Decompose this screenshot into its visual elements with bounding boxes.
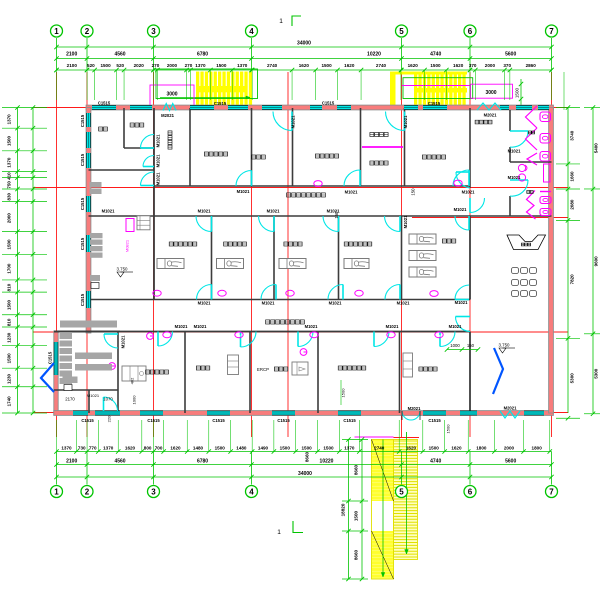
svg-text:2020: 2020 (134, 63, 145, 68)
svg-text:270: 270 (152, 63, 160, 68)
svg-text:1480: 1480 (236, 445, 247, 450)
svg-text:M1021: M1021 (156, 134, 161, 147)
svg-text:34000: 34000 (298, 471, 312, 477)
svg-text:1620: 1620 (451, 445, 462, 450)
svg-text:7820: 7820 (570, 274, 575, 285)
svg-text:1660: 1660 (570, 171, 575, 182)
svg-text:C1515: C1515 (343, 418, 356, 423)
svg-text:700: 700 (155, 445, 163, 450)
svg-text:1500: 1500 (515, 87, 520, 98)
svg-text:C1515: C1515 (214, 101, 227, 106)
svg-text:1500: 1500 (430, 63, 441, 68)
svg-text:C1515: C1515 (80, 197, 85, 210)
svg-text:2740: 2740 (376, 63, 387, 68)
svg-text:4560: 4560 (114, 458, 125, 464)
svg-text:2100: 2100 (67, 63, 78, 68)
svg-text:M1021: M1021 (121, 335, 126, 348)
svg-text:1370: 1370 (7, 114, 12, 125)
svg-text:220: 220 (107, 415, 112, 422)
svg-text:370: 370 (469, 63, 477, 68)
svg-text:3740: 3740 (570, 130, 575, 141)
svg-text:5600: 5600 (505, 52, 516, 58)
svg-text:M1021: M1021 (291, 115, 296, 128)
svg-text:1230: 1230 (7, 373, 12, 384)
svg-text:770: 770 (89, 445, 97, 450)
svg-text:1500: 1500 (215, 445, 226, 450)
svg-text:C1515: C1515 (80, 237, 85, 250)
svg-text:M1021: M1021 (267, 209, 280, 214)
svg-text:1500: 1500 (7, 135, 12, 146)
svg-text:M1021: M1021 (327, 209, 340, 214)
svg-text:3.750: 3.750 (117, 267, 129, 272)
svg-text:1620: 1620 (125, 445, 136, 450)
svg-text:1370: 1370 (61, 445, 72, 450)
svg-text:1500: 1500 (7, 353, 12, 364)
svg-text:C1515: C1515 (212, 418, 225, 423)
svg-text:3.750: 3.750 (499, 343, 511, 348)
svg-text:1230: 1230 (7, 332, 12, 343)
svg-text:M1021: M1021 (305, 324, 318, 329)
svg-text:1000: 1000 (450, 343, 460, 348)
svg-text:M2021: M2021 (408, 406, 421, 411)
svg-text:1620: 1620 (408, 63, 419, 68)
svg-text:C1515: C1515 (80, 153, 85, 166)
svg-text:M1021: M1021 (262, 301, 275, 306)
svg-text:5: 5 (399, 27, 404, 36)
svg-text:1370: 1370 (195, 63, 206, 68)
svg-text:M1021: M1021 (329, 301, 342, 306)
svg-text:2170: 2170 (65, 397, 75, 402)
svg-text:1500: 1500 (321, 63, 332, 68)
svg-text:C1515: C1515 (428, 101, 441, 106)
svg-text:5: 5 (399, 487, 404, 496)
svg-text:4740: 4740 (430, 52, 441, 58)
svg-text:6: 6 (468, 27, 473, 36)
svg-text:2740: 2740 (374, 445, 385, 450)
svg-text:1800: 1800 (476, 445, 487, 450)
svg-text:M1021: M1021 (403, 115, 408, 128)
svg-text:1480: 1480 (193, 445, 204, 450)
svg-text:7: 7 (549, 27, 554, 36)
svg-text:730: 730 (78, 445, 86, 450)
svg-text:M1021: M1021 (462, 189, 475, 194)
svg-text:M1021: M1021 (397, 301, 410, 306)
svg-text:M0821: M0821 (125, 239, 130, 252)
svg-text:M1021: M1021 (156, 154, 161, 167)
svg-text:810: 810 (7, 318, 12, 326)
svg-text:C1515: C1515 (277, 418, 290, 423)
svg-text:1500: 1500 (280, 445, 291, 450)
svg-text:3: 3 (151, 27, 156, 36)
svg-text:34000: 34000 (297, 41, 311, 47)
svg-text:2100: 2100 (66, 52, 77, 58)
svg-text:M1021: M1021 (194, 324, 207, 329)
svg-text:M1021: M1021 (454, 207, 467, 212)
svg-text:3: 3 (151, 487, 156, 496)
svg-text:M1021: M1021 (455, 300, 468, 305)
svg-text:M1021: M1021 (102, 209, 115, 214)
svg-text:1490: 1490 (258, 445, 269, 450)
svg-text:1070: 1070 (103, 397, 113, 402)
svg-text:2740: 2740 (267, 63, 278, 68)
svg-text:1620: 1620 (170, 445, 181, 450)
svg-text:1: 1 (54, 27, 59, 36)
svg-text:370: 370 (503, 63, 511, 68)
svg-text:ERCP: ERCP (257, 367, 269, 372)
svg-text:1370: 1370 (7, 157, 12, 168)
svg-text:3000: 3000 (485, 90, 496, 96)
svg-text:3000: 3000 (166, 92, 177, 98)
svg-text:2: 2 (85, 487, 90, 496)
svg-text:2000: 2000 (485, 63, 496, 68)
svg-text:520: 520 (116, 63, 124, 68)
svg-text:2080: 2080 (570, 199, 575, 210)
svg-text:M1021: M1021 (386, 324, 399, 329)
svg-text:1500: 1500 (7, 239, 12, 250)
svg-text:5600: 5600 (505, 458, 516, 464)
svg-text:800: 800 (144, 445, 152, 450)
svg-text:1370: 1370 (344, 445, 355, 450)
svg-text:7: 7 (549, 487, 554, 496)
svg-text:2860: 2860 (526, 63, 537, 68)
svg-text:1: 1 (279, 18, 283, 25)
svg-text:M1021: M1021 (237, 189, 250, 194)
svg-text:6780: 6780 (197, 52, 208, 58)
svg-text:5400: 5400 (594, 143, 599, 154)
svg-text:M1021: M1021 (403, 215, 408, 228)
svg-text:1370: 1370 (103, 445, 114, 450)
svg-text:4740: 4740 (430, 458, 441, 464)
svg-text:520: 520 (87, 63, 95, 68)
svg-text:6780: 6780 (197, 458, 208, 464)
svg-text:150: 150 (411, 188, 416, 196)
svg-text:C1515: C1515 (80, 114, 85, 127)
svg-text:810: 810 (7, 283, 12, 291)
svg-text:1500: 1500 (446, 424, 451, 434)
svg-text:5300: 5300 (570, 373, 575, 384)
svg-text:10220: 10220 (367, 52, 381, 58)
svg-text:M1021: M1021 (508, 149, 521, 154)
svg-text:4: 4 (249, 27, 254, 36)
svg-text:M2021: M2021 (484, 113, 497, 118)
svg-text:1500: 1500 (354, 510, 359, 521)
svg-text:M1021: M1021 (87, 393, 100, 398)
svg-text:6: 6 (468, 487, 473, 496)
svg-text:M1021: M1021 (198, 301, 211, 306)
svg-text:2000: 2000 (504, 445, 515, 450)
svg-text:C1515: C1515 (80, 293, 85, 306)
svg-text:M1021: M1021 (198, 209, 211, 214)
svg-text:1620: 1620 (453, 63, 464, 68)
svg-text:1000: 1000 (132, 395, 137, 405)
svg-text:1500: 1500 (100, 63, 111, 68)
svg-text:4560: 4560 (114, 52, 125, 58)
svg-text:1500: 1500 (302, 445, 313, 450)
svg-text:C1515: C1515 (48, 351, 53, 364)
svg-text:M1021: M1021 (508, 175, 521, 180)
svg-text:2100: 2100 (66, 458, 77, 464)
svg-text:18820: 18820 (341, 503, 346, 516)
svg-text:750: 750 (7, 181, 12, 189)
svg-text:4: 4 (249, 487, 254, 496)
svg-text:1620: 1620 (344, 63, 355, 68)
svg-text:1740: 1740 (7, 396, 12, 407)
svg-text:10220: 10220 (320, 458, 334, 464)
svg-text:2: 2 (85, 27, 90, 36)
svg-text:1620: 1620 (406, 445, 417, 450)
svg-text:C1515: C1515 (147, 418, 160, 423)
svg-text:M1021: M1021 (156, 172, 161, 185)
svg-text:1800: 1800 (532, 445, 543, 450)
svg-text:8660: 8660 (354, 464, 359, 475)
svg-text:410: 410 (7, 172, 12, 180)
svg-text:M1021: M1021 (345, 189, 358, 194)
svg-text:2000: 2000 (167, 63, 178, 68)
svg-text:1370: 1370 (237, 63, 248, 68)
svg-text:8660: 8660 (354, 549, 359, 560)
svg-text:1: 1 (277, 529, 281, 536)
svg-text:1: 1 (54, 487, 59, 496)
svg-text:M1021: M1021 (449, 324, 462, 329)
svg-text:150: 150 (467, 343, 475, 348)
svg-text:M1021: M1021 (175, 324, 188, 329)
svg-text:462: 462 (130, 377, 135, 384)
svg-text:1700: 1700 (7, 263, 12, 274)
svg-text:270: 270 (185, 63, 193, 68)
svg-text:8660: 8660 (305, 451, 310, 462)
svg-text:1620: 1620 (299, 63, 310, 68)
svg-text:1500: 1500 (7, 299, 12, 310)
svg-text:M2021: M2021 (161, 113, 174, 118)
svg-text:5300: 5300 (594, 368, 599, 379)
svg-text:1500: 1500 (216, 63, 227, 68)
svg-text:1500: 1500 (323, 445, 334, 450)
svg-text:C1515: C1515 (81, 418, 94, 423)
svg-text:9600: 9600 (594, 256, 599, 267)
svg-text:C1515: C1515 (322, 100, 335, 105)
svg-text:1500: 1500 (429, 445, 440, 450)
svg-text:830: 830 (7, 192, 12, 200)
svg-text:2000: 2000 (7, 213, 12, 224)
svg-text:C1515: C1515 (98, 100, 111, 105)
svg-text:M2021: M2021 (504, 405, 517, 410)
svg-text:C1515: C1515 (428, 418, 441, 423)
